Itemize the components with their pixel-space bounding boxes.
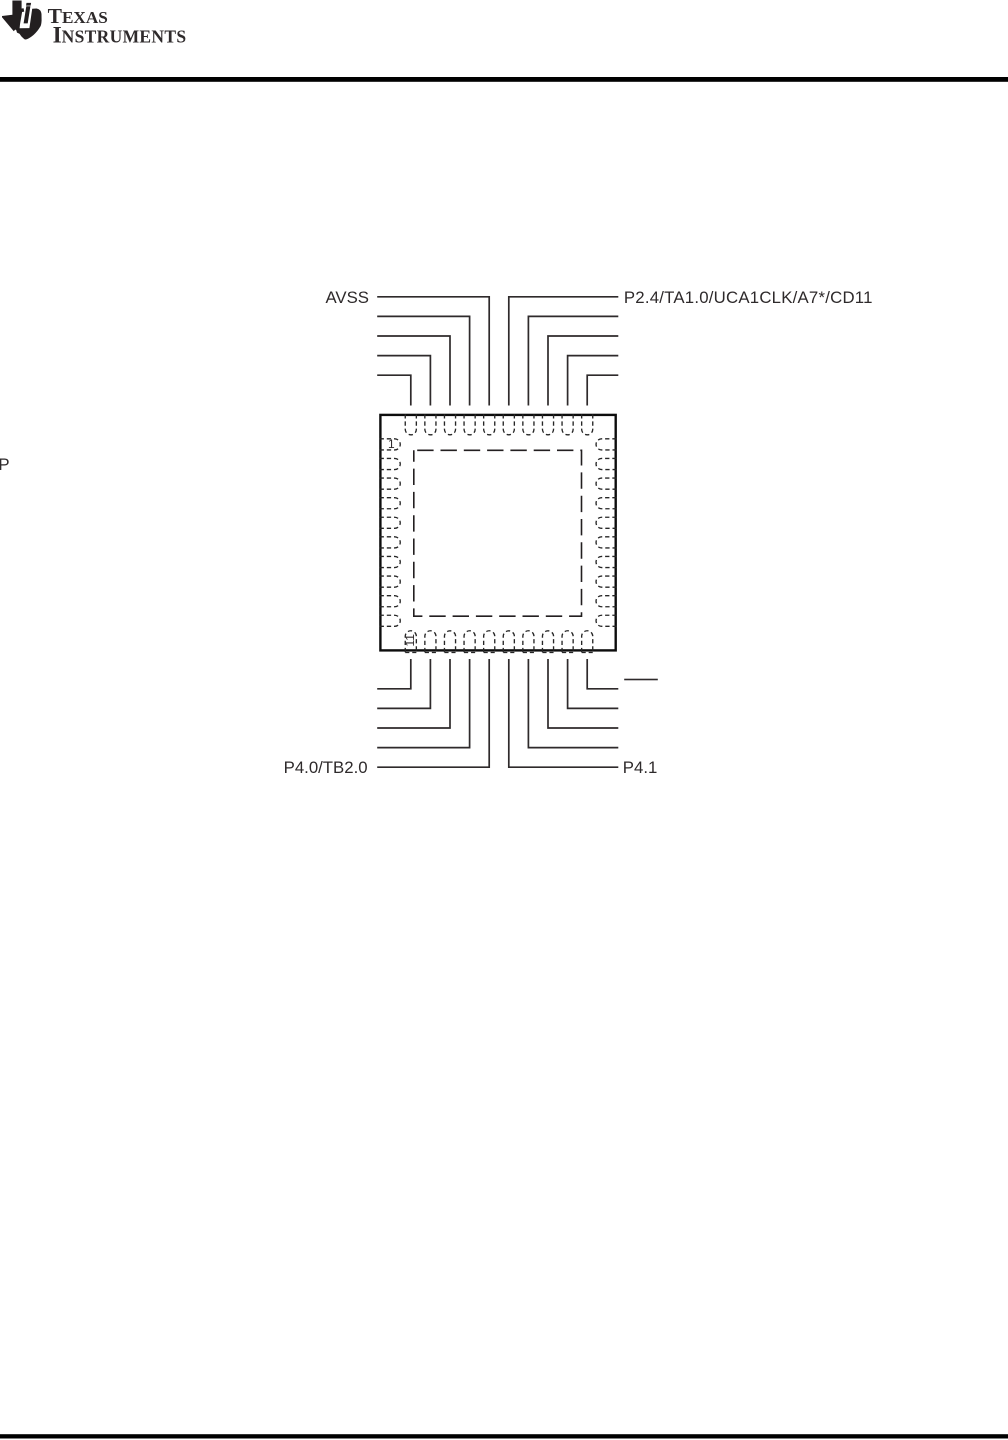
svg-text:P: P xyxy=(0,455,10,474)
svg-text:11: 11 xyxy=(403,634,417,647)
svg-text:P2.4/TA1.0/UCA1CLK/A7*/CD11: P2.4/TA1.0/UCA1CLK/A7*/CD11 xyxy=(624,288,873,307)
svg-text:AVSS: AVSS xyxy=(325,288,369,307)
svg-text:P4.1: P4.1 xyxy=(623,758,658,777)
svg-text:INSTRUMENTS: INSTRUMENTS xyxy=(53,23,187,49)
svg-text:1: 1 xyxy=(388,437,395,451)
svg-text:P4.0/TB2.0: P4.0/TB2.0 xyxy=(284,758,368,777)
